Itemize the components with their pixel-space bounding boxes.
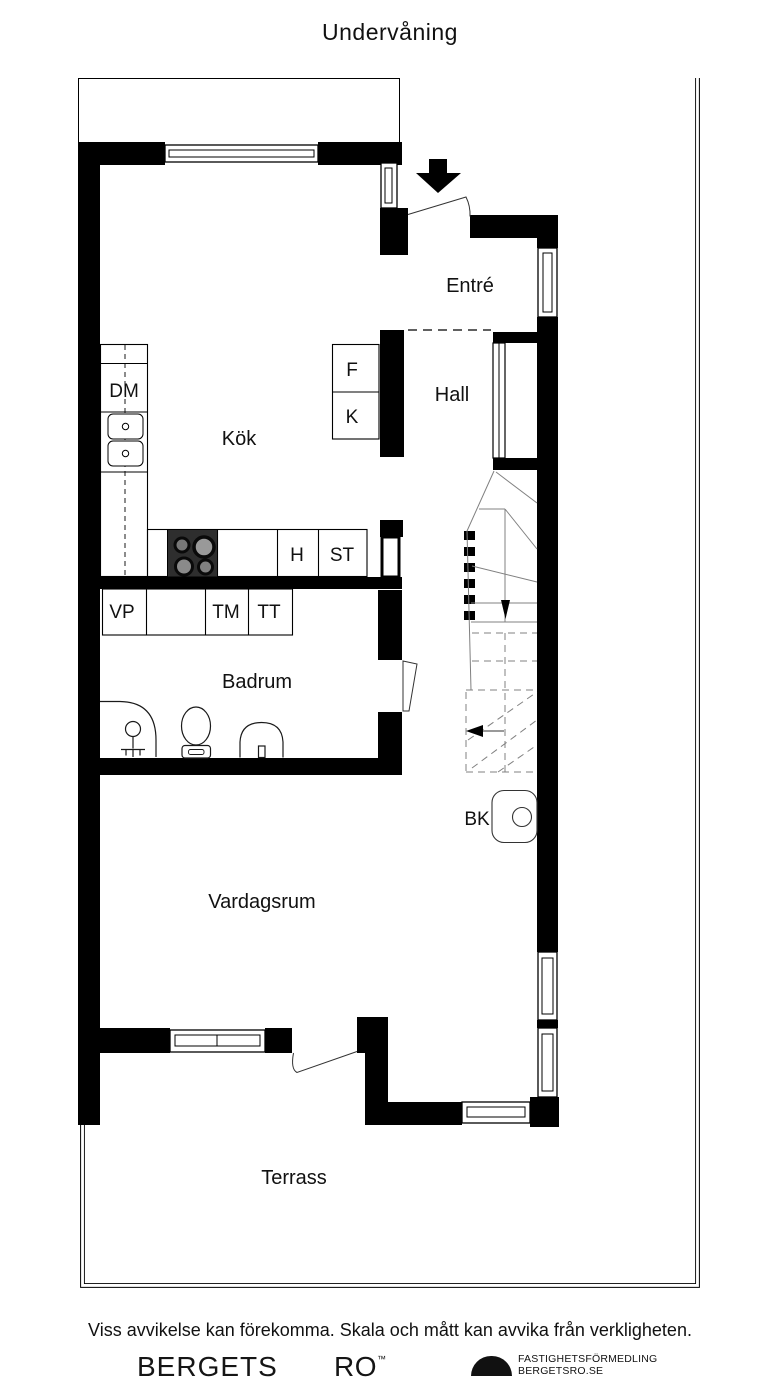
burner [199,560,213,574]
wall-niche [382,537,399,577]
floorplan-drawing: Entré Hall Kök Badrum Vardagsrum Terrass… [0,0,780,1400]
window-pane [542,1034,553,1091]
stove-icon [168,530,218,578]
window-hall [493,343,505,458]
washbasin-icon [240,723,283,758]
agency-text: FASTIGHETSFÖRMEDLING BERGETSRO.SE [518,1354,657,1377]
bk-fixture [492,791,537,843]
toilet-icon [182,707,211,758]
burner [194,537,214,557]
fixture-label-dm: DM [109,381,139,402]
bk-outline [492,791,537,843]
fixture-label-f: F [346,360,358,381]
room-label-badrum: Badrum [222,671,292,693]
stair-tread-dashed [498,745,537,772]
room-label-vardagsrum: Vardagsrum [208,891,315,913]
basin-faucet [259,746,266,758]
agency-line1: FASTIGHETSFÖRMEDLING [518,1354,657,1366]
stair-down-arrow-icon [501,600,510,619]
window-vardagsrum [170,1030,265,1052]
toilet-bowl [182,707,211,745]
fixture-label-bk: BK [464,809,490,830]
window-right-upper [538,952,557,1020]
entry-door-swing [408,197,470,217]
window-pane [467,1107,525,1117]
fixture-label-tm: TM [212,602,239,623]
sink-basin [108,414,143,439]
brand-ro-text: RO [334,1351,377,1382]
window-entry-side [381,163,397,208]
burner [176,558,193,575]
window-pane [542,958,553,1014]
window-right-lower [538,1028,557,1097]
stair-upper-flight-dashed [466,633,537,772]
window-top-wall [165,145,318,162]
entrance-arrow-icon [416,159,461,193]
bathroom-door-leaf [403,661,417,711]
room-label-hall: Hall [435,384,469,406]
staircase [466,471,537,772]
stair-tread [505,509,537,549]
agency-line2: BERGETSRO.SE [518,1366,657,1378]
trademark-symbol: ™ [377,1354,386,1364]
fixture-label-h: H [290,545,304,566]
fixture-label-tt: TT [257,602,281,623]
room-label-kok: Kök [222,428,257,450]
arrow-stem [429,159,447,173]
window-pane [385,168,392,203]
fixture-label-st: ST [330,545,355,566]
shower-enclosure [100,702,156,758]
toilet-tank [182,746,211,759]
window-pane [543,253,552,312]
room-label-entre: Entré [446,275,494,297]
window-bottom-right [462,1102,530,1123]
stair-tread [496,472,537,503]
brand-name-left: BERGETS [137,1351,278,1383]
floorplan-page: Undervåning [0,0,780,1400]
window-entre-right [538,248,557,317]
burner [175,538,189,552]
stair-left-arrow-icon [466,725,483,737]
kitchen-sink [108,414,143,466]
terrace-door-swing [293,1052,357,1073]
fixture-label-k: K [346,407,359,428]
basin-outline [240,723,283,758]
shower-head [126,722,141,737]
window-pane [169,150,314,157]
brand-name-right: RO™ [334,1351,386,1383]
sink-basin [108,441,143,466]
disclaimer-text: Viss avvikelse kan förekomma. Skala och … [0,1320,780,1341]
fixture-label-vp: VP [109,602,134,623]
shower-icon [100,702,156,758]
arrow-head [416,173,461,193]
room-label-terrass: Terrass [261,1167,327,1189]
